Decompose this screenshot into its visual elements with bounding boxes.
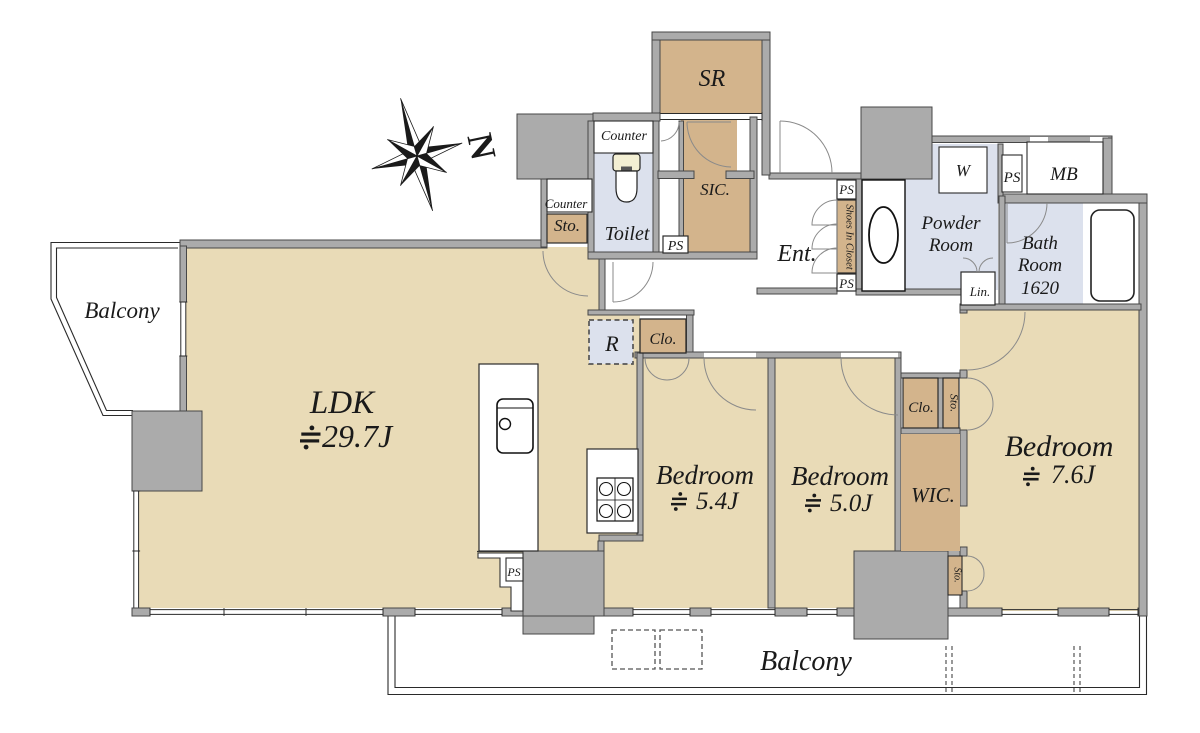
svg-text:Bedroom: Bedroom — [656, 460, 754, 490]
svg-text:Balcony: Balcony — [84, 298, 160, 323]
svg-text:Ent.: Ent. — [776, 241, 816, 267]
svg-text:WIC.: WIC. — [911, 483, 955, 507]
svg-text:Lin.: Lin. — [969, 284, 991, 299]
svg-text:Room: Room — [1017, 255, 1062, 276]
svg-text:PS: PS — [838, 182, 854, 197]
svg-text:PS: PS — [1003, 170, 1021, 186]
svg-text:Clo.: Clo. — [649, 331, 676, 348]
svg-text:LDK: LDK — [309, 385, 376, 421]
svg-text:Counter: Counter — [545, 196, 589, 211]
svg-text:Counter: Counter — [601, 129, 647, 144]
svg-text:1620: 1620 — [1021, 278, 1060, 299]
svg-text:Shoes In Closet: Shoes In Closet — [844, 204, 855, 270]
svg-text:Bath: Bath — [1022, 233, 1058, 254]
svg-text:SR: SR — [699, 66, 726, 92]
svg-text:Balcony: Balcony — [760, 646, 852, 677]
svg-text:7.6J: 7.6J — [1051, 460, 1097, 489]
svg-text:Sto.: Sto. — [948, 394, 962, 412]
svg-text:5.4J: 5.4J — [696, 488, 740, 515]
svg-text:5.0J: 5.0J — [830, 490, 874, 517]
svg-text:R: R — [604, 331, 619, 356]
svg-text:29.7J: 29.7J — [322, 418, 394, 454]
svg-text:MB: MB — [1049, 164, 1078, 185]
svg-text:Sto.: Sto. — [554, 216, 580, 235]
svg-text:Room: Room — [928, 235, 973, 256]
svg-text:PS: PS — [506, 565, 520, 579]
svg-text:Powder: Powder — [920, 213, 981, 234]
svg-text:PS: PS — [667, 239, 684, 254]
svg-text:SIC.: SIC. — [700, 180, 730, 199]
svg-text:Bedroom: Bedroom — [791, 461, 889, 491]
svg-text:PS: PS — [838, 276, 854, 291]
svg-text:Clo.: Clo. — [908, 400, 933, 416]
svg-text:W: W — [956, 161, 972, 180]
svg-text:Sto.: Sto. — [952, 567, 963, 582]
svg-text:Toilet: Toilet — [605, 223, 650, 245]
svg-text:Bedroom: Bedroom — [1005, 430, 1114, 463]
